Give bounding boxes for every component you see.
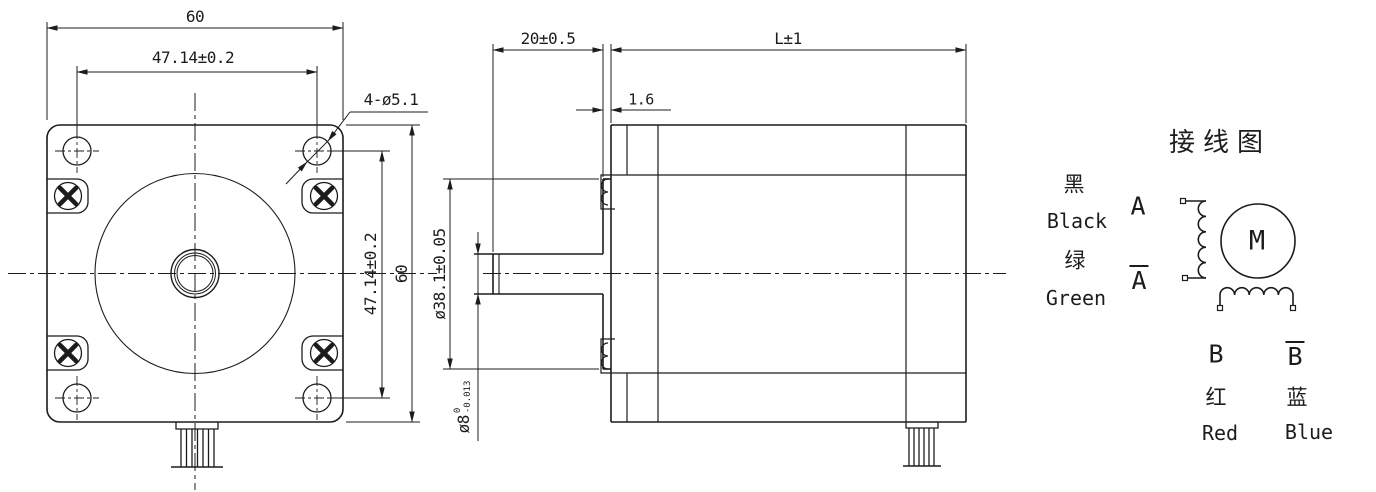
phase-a-bar-label: A — [1129, 265, 1148, 293]
dim-front-bolt-spacing-vertical: 47.14±0.2 — [363, 233, 379, 315]
dim-pilot-depth: 1.6 — [628, 93, 654, 108]
rear-lead-wires — [903, 422, 941, 466]
dim-pilot-diameter: ø38.1±0.05 — [432, 228, 448, 319]
dim-body-length: L±1 — [774, 31, 801, 47]
lead-blue-en: Blue — [1285, 422, 1333, 442]
phase-b-coil — [1220, 288, 1293, 306]
front-dimension-lines — [47, 22, 428, 422]
phase-a-label: A — [1130, 194, 1145, 219]
lead-blue-cn: 蓝 — [1287, 388, 1308, 409]
lead-red-en: Red — [1202, 423, 1238, 443]
lead-red-cn: 红 — [1206, 388, 1227, 409]
dim-front-width: 60 — [186, 9, 204, 25]
phase-b-label: B — [1208, 342, 1223, 367]
phase-a-coil — [1186, 201, 1207, 278]
stepper-motor-drawing: 60 47.14±0.2 4-ø5.1 47.14±0.2 60 20±0.5 … — [0, 0, 1376, 492]
dim-front-height: 60 — [394, 265, 410, 283]
side-view-linework — [443, 44, 1006, 466]
shaft-dia-value: ø8 — [456, 415, 472, 433]
drawing-linework — [0, 0, 1376, 492]
front-lead-wires — [171, 422, 223, 467]
dim-shaft-length: 20±0.5 — [521, 31, 576, 47]
phase-b-bar-label: B — [1285, 341, 1304, 369]
dim-shaft-diameter: ø80-0.013 — [454, 381, 474, 434]
lead-black-cn: 黑 — [1064, 175, 1085, 196]
shaft-dia-tolerance: 0-0.013 — [454, 381, 474, 414]
lead-green-cn: 绿 — [1065, 251, 1086, 272]
motor-m-label: M — [1249, 228, 1265, 255]
lead-black-en: Black — [1047, 211, 1107, 231]
dim-front-bolt-spacing: 47.14±0.2 — [152, 50, 234, 66]
wiring-title: 接线图 — [1169, 130, 1271, 156]
dim-mount-holes: 4-ø5.1 — [364, 92, 419, 108]
wiring-diagram-linework — [1181, 199, 1296, 311]
lead-green-en: Green — [1046, 288, 1106, 308]
side-dimension-lines — [443, 44, 966, 441]
